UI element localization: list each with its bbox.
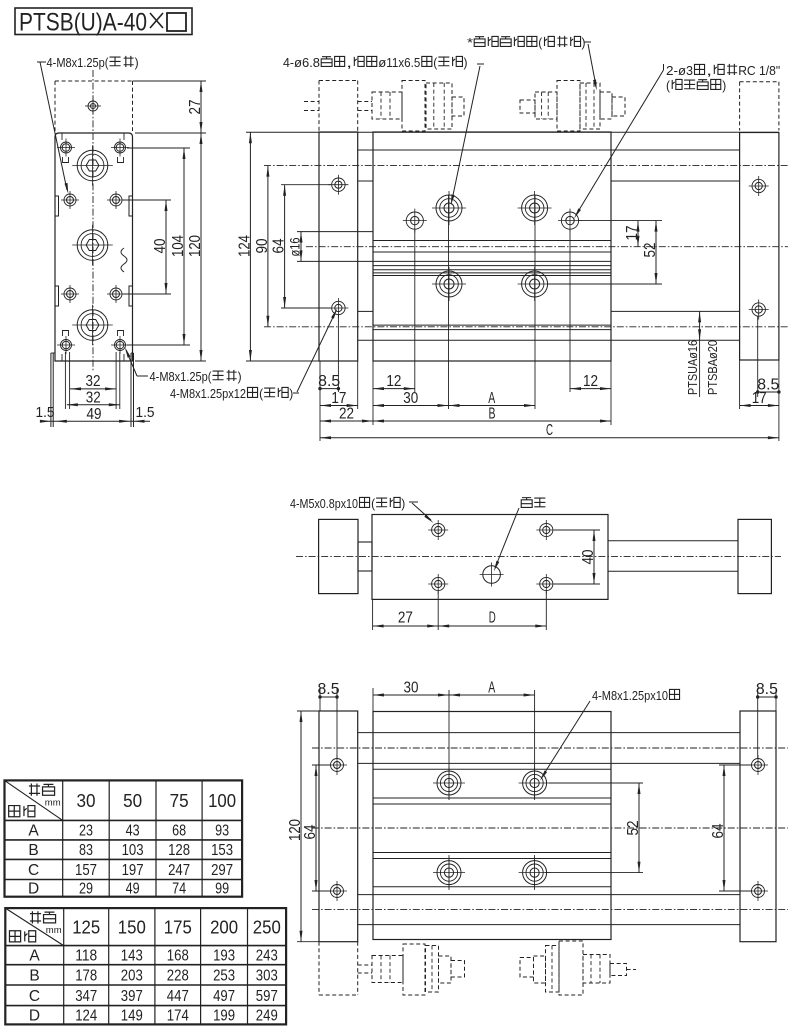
svg-text:(: ( <box>538 35 543 50</box>
svg-text:4-M8x1.25p(: 4-M8x1.25p( <box>150 369 212 384</box>
svg-text:104: 104 <box>170 235 187 257</box>
svg-text:157: 157 <box>75 862 97 879</box>
svg-text:64: 64 <box>302 824 319 839</box>
svg-text:597: 597 <box>256 988 278 1005</box>
svg-text:43: 43 <box>126 823 140 840</box>
svg-text:mm: mm <box>45 797 61 808</box>
svg-text:(: ( <box>433 55 438 70</box>
svg-text:83: 83 <box>79 842 93 859</box>
svg-text:49: 49 <box>87 406 102 423</box>
svg-text:199: 199 <box>213 1008 235 1025</box>
svg-text:150: 150 <box>118 917 146 938</box>
svg-text:228: 228 <box>167 967 189 984</box>
svg-text:): ) <box>401 496 405 511</box>
svg-text:52: 52 <box>642 243 659 258</box>
svg-text:175: 175 <box>164 917 192 938</box>
svg-text:497: 497 <box>213 988 235 1005</box>
svg-text:29: 29 <box>79 881 93 898</box>
svg-text:174: 174 <box>167 1008 189 1025</box>
svg-text:100: 100 <box>208 790 236 811</box>
svg-text:C: C <box>28 862 39 879</box>
svg-text:64: 64 <box>271 238 288 253</box>
svg-text:90: 90 <box>254 238 271 253</box>
svg-text:A: A <box>488 390 495 407</box>
svg-text:*: * <box>467 35 473 50</box>
svg-text:200: 200 <box>210 917 238 938</box>
svg-text:12: 12 <box>386 373 401 390</box>
svg-text:4-M8x1.25px10: 4-M8x1.25px10 <box>592 688 668 703</box>
svg-text:124: 124 <box>75 1008 97 1025</box>
svg-text:197: 197 <box>122 862 144 879</box>
svg-text:B: B <box>29 967 39 984</box>
svg-text:297: 297 <box>211 862 233 879</box>
svg-text:,: , <box>346 55 352 70</box>
svg-text:143: 143 <box>121 948 143 965</box>
svg-text:ø: ø <box>294 55 302 70</box>
svg-text:23: 23 <box>79 823 93 840</box>
svg-text:D: D <box>489 610 496 627</box>
svg-text:1.5: 1.5 <box>136 404 155 421</box>
svg-text:4-M8x1.25p(: 4-M8x1.25p( <box>47 55 109 70</box>
svg-text:D: D <box>29 1008 40 1025</box>
svg-text:8.5: 8.5 <box>756 681 778 698</box>
svg-text:128: 128 <box>168 842 190 859</box>
svg-text:99: 99 <box>215 881 229 898</box>
svg-text:): ) <box>289 386 293 401</box>
svg-text:mm: mm <box>46 925 62 936</box>
svg-text:8.5: 8.5 <box>318 681 340 698</box>
svg-text:103: 103 <box>122 842 144 859</box>
svg-text:203: 203 <box>121 967 143 984</box>
svg-text:A: A <box>29 948 40 965</box>
svg-text:1.5: 1.5 <box>36 404 55 421</box>
svg-text:ø: ø <box>378 55 386 70</box>
svg-text:40: 40 <box>580 549 597 564</box>
svg-text:27: 27 <box>398 610 413 627</box>
svg-text:C: C <box>546 422 553 439</box>
svg-text:50: 50 <box>123 790 142 811</box>
svg-text:347: 347 <box>75 988 97 1005</box>
svg-text:(: ( <box>259 386 264 401</box>
svg-text:32: 32 <box>86 389 101 406</box>
svg-text:32: 32 <box>86 373 101 390</box>
svg-text:27: 27 <box>187 100 204 115</box>
svg-text:): ) <box>238 369 242 384</box>
svg-text:4-: 4- <box>283 55 294 70</box>
svg-text:): ) <box>135 55 139 70</box>
svg-text:153: 153 <box>211 842 233 859</box>
svg-text:68: 68 <box>172 823 186 840</box>
svg-text:397: 397 <box>121 988 143 1005</box>
svg-text:,: , <box>706 63 712 78</box>
svg-text:120: 120 <box>187 235 204 257</box>
svg-text:253: 253 <box>213 967 235 984</box>
svg-text:93: 93 <box>215 823 229 840</box>
svg-text:193: 193 <box>213 948 235 965</box>
svg-text:49: 49 <box>126 881 140 898</box>
svg-text:17: 17 <box>331 390 346 407</box>
svg-text:ø: ø <box>678 63 686 78</box>
svg-text:2-: 2- <box>666 63 678 78</box>
svg-text:A: A <box>28 823 39 840</box>
svg-text:D: D <box>28 881 39 898</box>
svg-text:178: 178 <box>75 967 97 984</box>
svg-text:): ) <box>464 55 468 70</box>
svg-text:118: 118 <box>75 948 97 965</box>
svg-text:30: 30 <box>77 790 96 811</box>
svg-text:303: 303 <box>256 967 278 984</box>
svg-text:149: 149 <box>121 1008 143 1025</box>
svg-text:11x6.5: 11x6.5 <box>386 55 420 70</box>
svg-text:A: A <box>488 680 495 697</box>
svg-text:250: 250 <box>253 917 281 938</box>
svg-text:447: 447 <box>167 988 189 1005</box>
svg-text:PTSUAø16: PTSUAø16 <box>685 340 700 395</box>
svg-text:52: 52 <box>625 821 642 836</box>
svg-text:4-M8x1.25px12: 4-M8x1.25px12 <box>170 386 246 401</box>
svg-text:124: 124 <box>237 235 254 257</box>
svg-text:168: 168 <box>167 948 189 965</box>
svg-text:PTSB(U)A-40: PTSB(U)A-40 <box>19 9 147 37</box>
svg-text:PTSBAø20: PTSBAø20 <box>705 340 720 395</box>
svg-text:247: 247 <box>168 862 190 879</box>
svg-text:74: 74 <box>172 881 186 898</box>
svg-text:C: C <box>29 988 40 1005</box>
svg-text:249: 249 <box>256 1008 278 1025</box>
svg-text:17: 17 <box>752 390 767 407</box>
svg-text:17: 17 <box>624 226 641 241</box>
svg-text:(: ( <box>371 496 376 511</box>
svg-text:B: B <box>489 406 496 423</box>
svg-text:40: 40 <box>152 238 169 253</box>
svg-text:22: 22 <box>339 406 354 423</box>
svg-text:B: B <box>28 842 38 859</box>
svg-text:RC 1/8": RC 1/8" <box>738 63 780 78</box>
svg-text:ø16: ø16 <box>288 238 303 257</box>
svg-text:75: 75 <box>170 790 189 811</box>
svg-text:30: 30 <box>403 390 418 407</box>
svg-text:4-M5x0.8px10: 4-M5x0.8px10 <box>290 496 358 511</box>
svg-text:30: 30 <box>404 680 419 697</box>
svg-text:243: 243 <box>256 948 278 965</box>
svg-text:8.5: 8.5 <box>318 373 340 390</box>
svg-text:12: 12 <box>583 373 598 390</box>
svg-text:125: 125 <box>72 917 100 938</box>
svg-text:6.8: 6.8 <box>302 55 320 70</box>
svg-text:64: 64 <box>710 823 727 838</box>
svg-text:): ) <box>722 78 726 93</box>
svg-text:(: ( <box>666 78 671 93</box>
svg-text:3: 3 <box>686 63 693 78</box>
